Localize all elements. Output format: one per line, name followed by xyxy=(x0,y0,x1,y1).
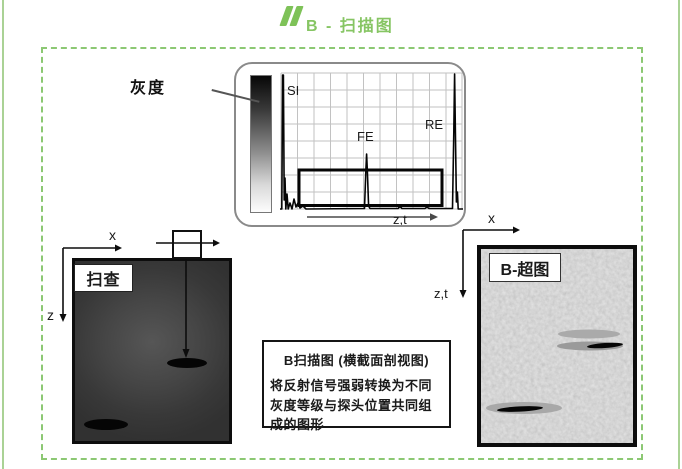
bscan-label: B-超图 xyxy=(489,253,561,282)
beam-arrowhead xyxy=(183,349,190,358)
zt-axis-arrowhead xyxy=(430,213,438,221)
fe-peak-label: FE xyxy=(357,129,374,144)
re-peak-label: RE xyxy=(425,117,443,132)
caption-box: B扫描图 (横截面剖视图) 将反射信号强弱转换为不同灰度等级与探头位置共同组成的… xyxy=(262,340,451,428)
grayscale-label: 灰度 xyxy=(130,74,166,98)
page: B - 扫描图 灰度 SI FE RE z,t 扫查 x z x xyxy=(0,0,682,469)
defect-ellipse-upper xyxy=(167,358,207,368)
left-green-line xyxy=(2,0,4,469)
indication-upper-band xyxy=(558,330,620,339)
ascan-plot: SI FE RE z,t xyxy=(280,72,463,225)
probe xyxy=(172,230,202,259)
header: B - 扫描图 xyxy=(283,4,394,36)
right-green-line xyxy=(678,0,680,469)
defect-ellipse-lower xyxy=(84,419,128,430)
grayscale-gradient-bar xyxy=(250,75,272,213)
beam-arrow xyxy=(177,259,195,363)
double-slash-icon xyxy=(283,6,300,26)
caption-title: B扫描图 (横截面剖视图) xyxy=(270,350,443,369)
zt-axis-label: z,t xyxy=(393,212,407,225)
si-peak-label: SI xyxy=(287,83,299,98)
scan-label: 扫查 xyxy=(74,264,133,292)
page-title: B - 扫描图 xyxy=(306,12,394,36)
caption-body: 将反射信号强弱转换为不同灰度等级与探头位置共同组成的图形 xyxy=(270,376,443,435)
